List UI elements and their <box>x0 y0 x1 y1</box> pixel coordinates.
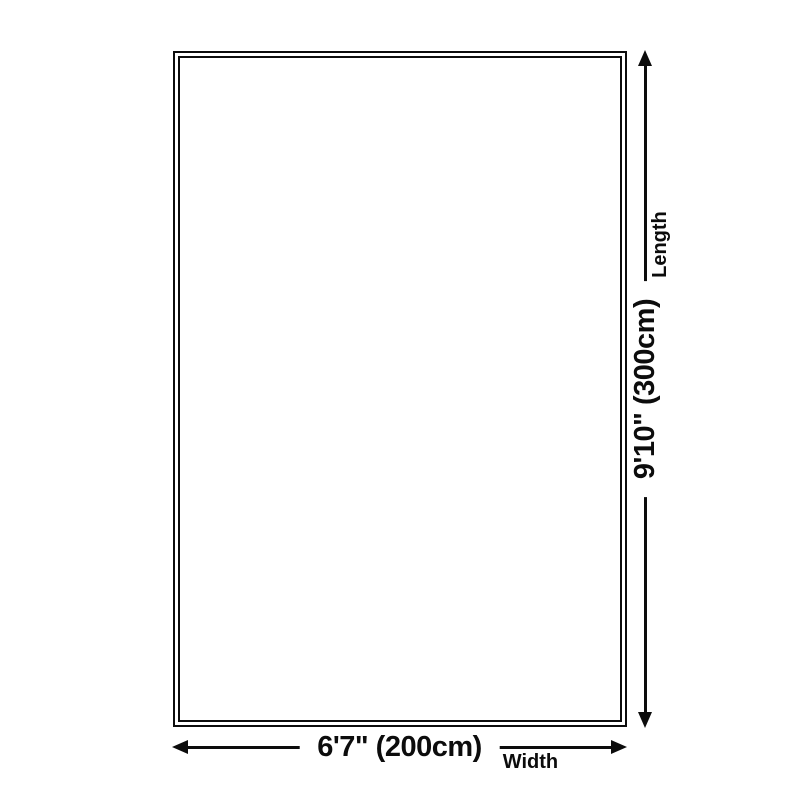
width-dimension-arrow: 6'7" (200cm) Width <box>172 725 627 769</box>
length-dimension-arrow: 9'10" (300cm) Length <box>623 50 667 728</box>
width-value: 6'7" (200cm) <box>317 731 482 763</box>
size-diagram: 6'7" (200cm) Width 9'10" (300cm) Length <box>0 0 800 800</box>
width-value-wrap: 6'7" (200cm) Width <box>299 730 500 764</box>
rug-outline-inner-border <box>178 56 622 722</box>
rug-outline <box>173 51 627 727</box>
length-value: 9'10" (300cm) <box>629 299 661 479</box>
width-label: Width <box>503 752 558 772</box>
length-label: Length <box>650 211 670 278</box>
length-value-wrap: 9'10" (300cm) Length <box>628 281 662 497</box>
up-arrowhead-icon <box>638 50 652 66</box>
right-arrowhead-icon <box>611 740 627 754</box>
